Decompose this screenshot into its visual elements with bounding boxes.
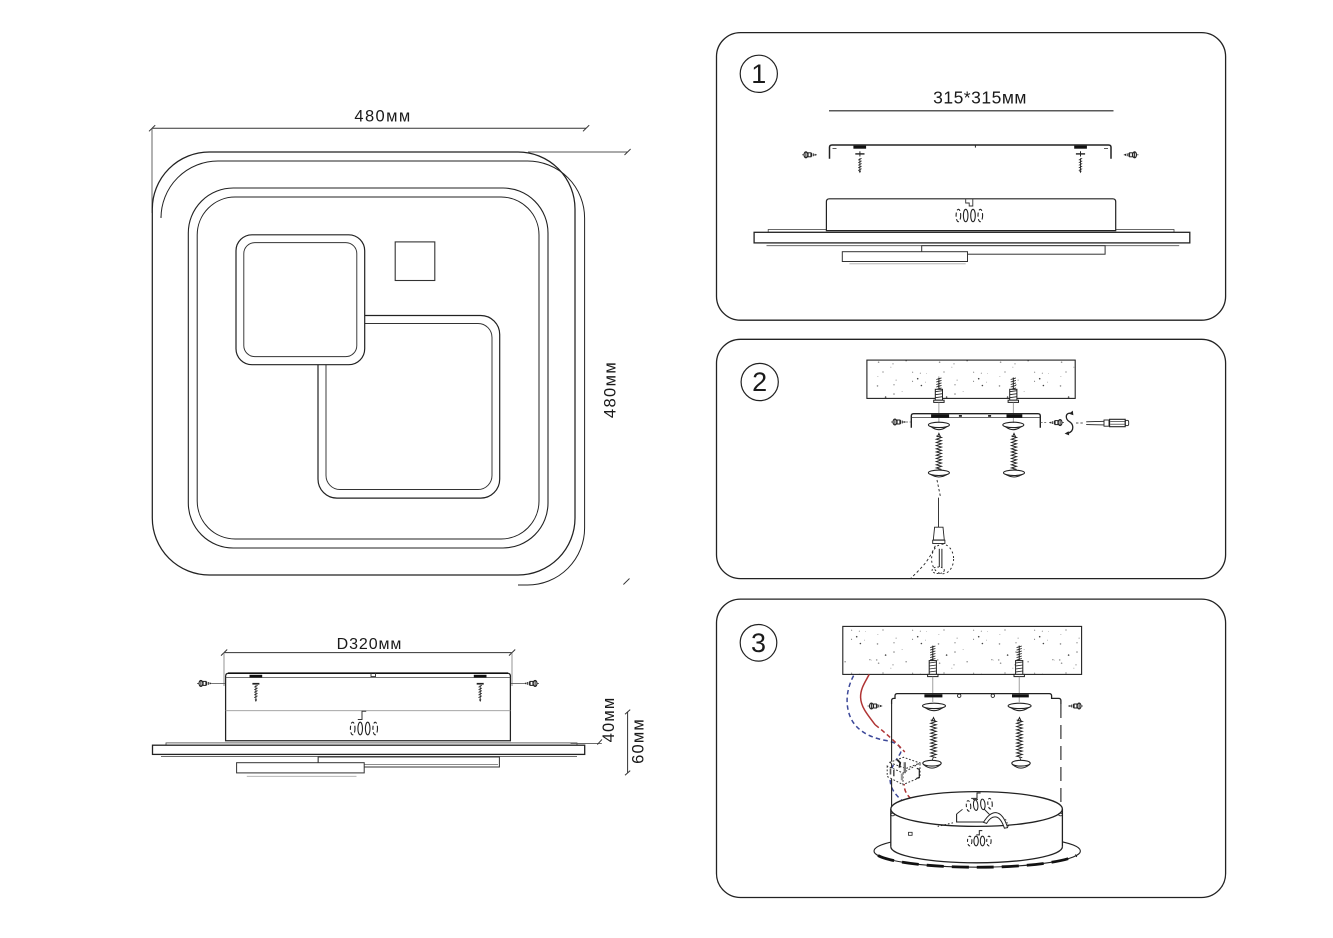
svg-text:1: 1 [751, 59, 766, 89]
svg-text:480мм: 480мм [602, 361, 620, 418]
svg-text:315*315мм: 315*315мм [933, 88, 1027, 108]
svg-text:D320мм: D320мм [337, 636, 403, 653]
svg-text:60мм: 60мм [630, 718, 648, 764]
svg-text:480мм: 480мм [354, 108, 411, 126]
svg-text:2: 2 [752, 367, 767, 397]
svg-text:40мм: 40мм [600, 697, 618, 743]
svg-text:3: 3 [751, 628, 766, 658]
